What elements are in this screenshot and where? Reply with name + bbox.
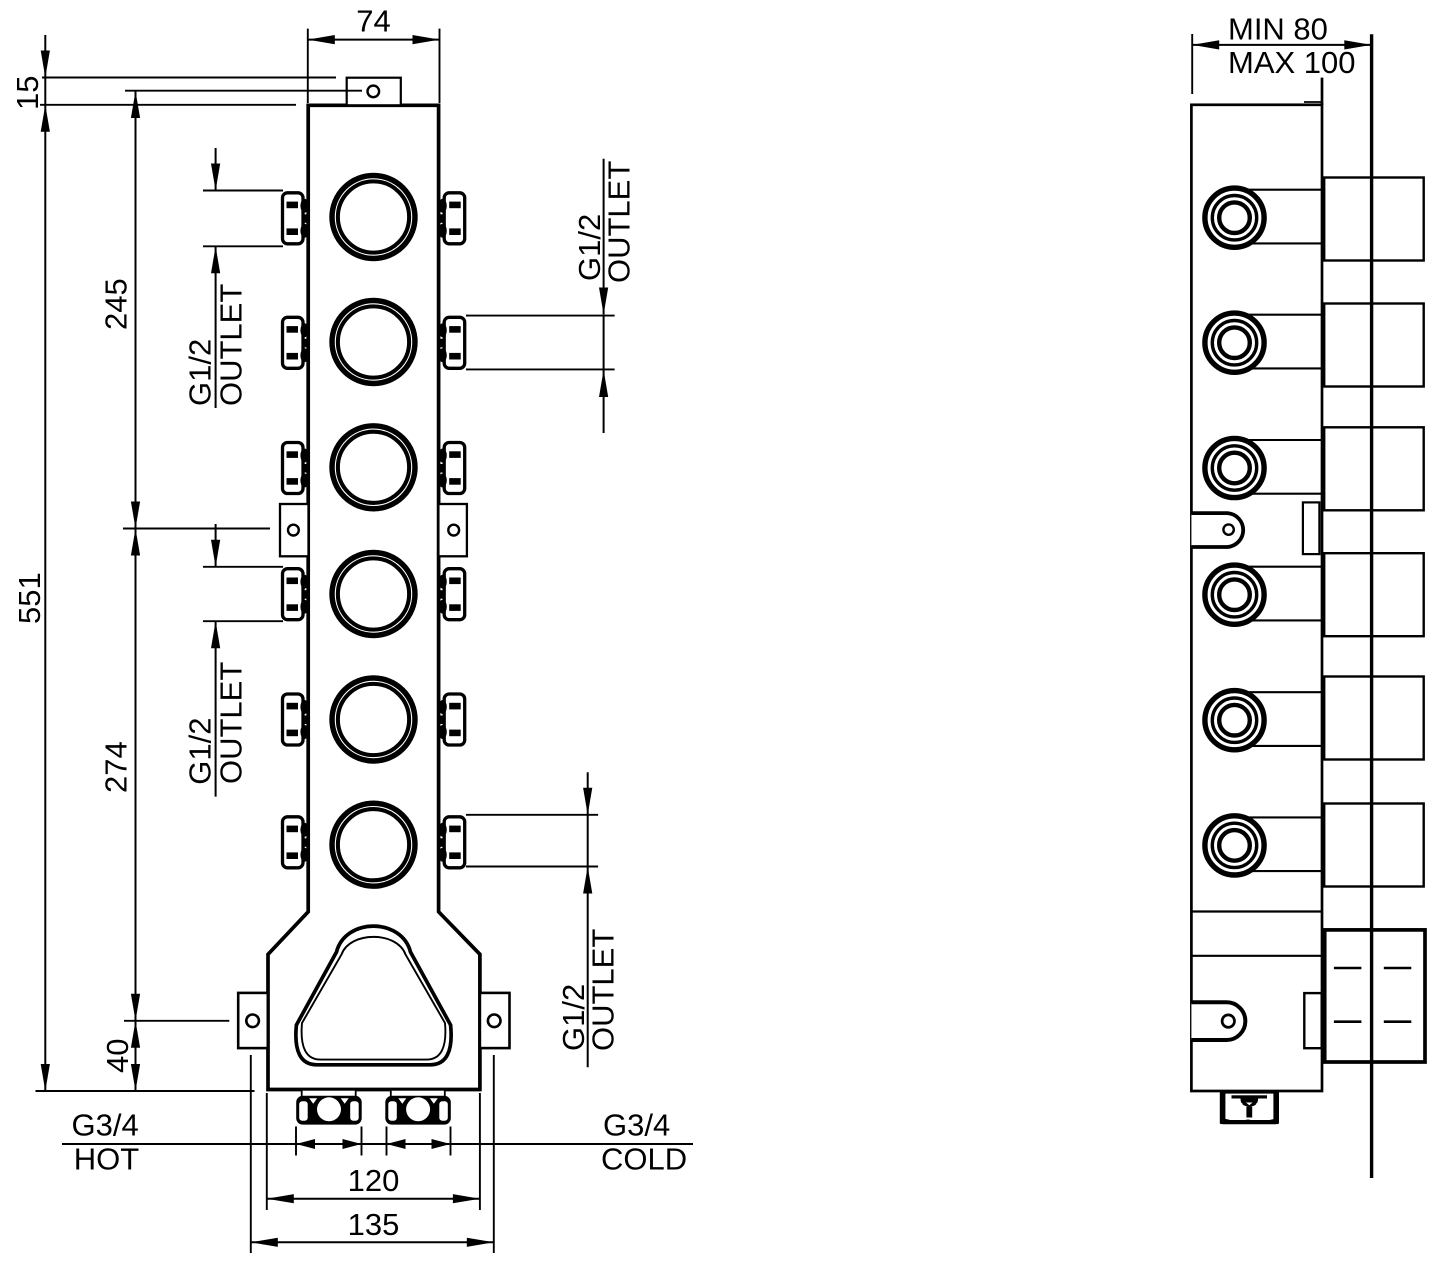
svg-text:OUTLET: OUTLET (214, 662, 249, 784)
svg-text:HOT: HOT (74, 1142, 140, 1177)
svg-text:OUTLET: OUTLET (586, 929, 621, 1051)
svg-text:120: 120 (348, 1163, 400, 1198)
svg-text:245: 245 (99, 278, 134, 330)
svg-text:274: 274 (99, 741, 134, 793)
svg-text:40: 40 (100, 1039, 135, 1073)
svg-text:G3/4: G3/4 (603, 1108, 670, 1143)
svg-text:MIN 80: MIN 80 (1228, 12, 1328, 47)
svg-text:G3/4: G3/4 (72, 1108, 139, 1143)
svg-text:G1/2: G1/2 (183, 339, 218, 406)
svg-text:MAX 100: MAX 100 (1228, 45, 1356, 80)
svg-text:74: 74 (356, 4, 390, 39)
svg-text:COLD: COLD (601, 1142, 687, 1177)
svg-text:551: 551 (12, 572, 47, 624)
svg-text:135: 135 (348, 1207, 400, 1242)
svg-text:OUTLET: OUTLET (602, 161, 637, 283)
svg-text:G1/2: G1/2 (183, 717, 218, 784)
svg-text:15: 15 (10, 76, 45, 110)
svg-text:OUTLET: OUTLET (214, 284, 249, 406)
